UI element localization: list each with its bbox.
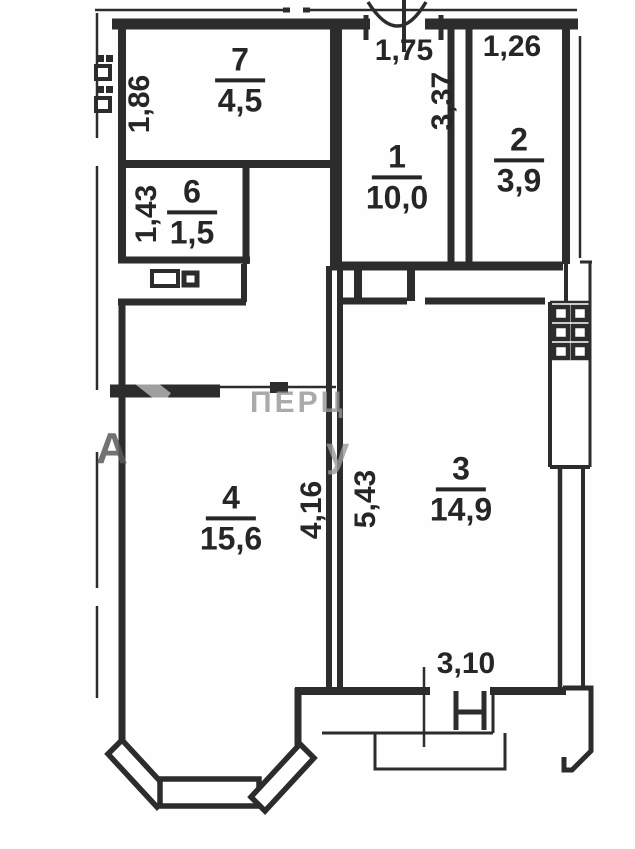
room-area: 4,5 [218,82,262,117]
balcony-outline [375,733,505,769]
room-number: 2 [494,123,544,162]
room-area: 3,9 [497,162,541,197]
bay-window [108,740,314,811]
room-number: 7 [215,43,265,82]
balcony [322,667,505,769]
dimension-1-43: 1,43 [132,185,162,243]
room-label-1: 1 10,0 [366,140,428,213]
room-label-2: 2 3,9 [494,123,544,196]
dimension-3-10: 3,10 [437,649,495,679]
dimension-1-75: 1,75 [375,36,433,66]
dimension-1-26: 1,26 [483,32,541,62]
vent-symbols-corridor [152,271,197,286]
wall-chamfer-corner [563,688,591,770]
room-label-4: 4 15,6 [200,481,262,554]
room-area: 15,6 [200,520,262,555]
dimension-3-37: 3,37 [428,72,458,130]
window [160,779,259,806]
dimension-5-43: 5,43 [351,470,381,528]
outer-contour-lines [95,10,592,698]
room-number: 3 [436,452,486,491]
dimension-1-86: 1,86 [125,75,155,133]
floor-plan: 7 4,5 6 1,5 1 10,0 2 3,9 4 15,6 3 14,9 1… [0,0,635,849]
room-label-3: 3 14,9 [430,452,492,525]
room-label-7: 7 4,5 [215,43,265,116]
dimension-4-16: 4,16 [297,481,327,539]
vent-shaft-right [550,302,590,467]
door-swing-arc [368,2,426,26]
room-number: 4 [206,481,256,520]
room-area: 1,5 [170,214,214,249]
room-label-6: 6 1,5 [167,175,217,248]
room-number: 6 [167,175,217,214]
room-area: 10,0 [366,179,428,214]
room-number: 1 [372,140,422,179]
room-area: 14,9 [430,491,492,526]
